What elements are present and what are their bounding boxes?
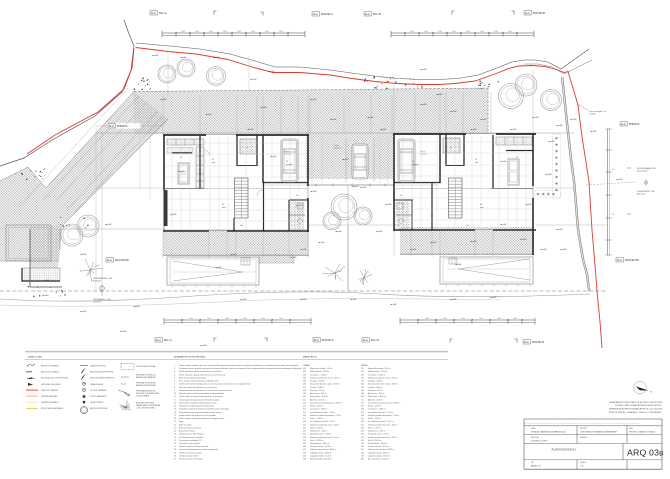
svg-text:POSICAO CARTOGRAFICA PERIODICA: POSICAO CARTOGRAFICA PERIODICA DE REGIST…: [615, 404, 662, 407]
svg-text:Instalacao sanitaria de servic: Instalacao sanitaria de servico - 3,65 m…: [368, 376, 398, 379]
svg-text:4.50: 4.50: [195, 31, 198, 33]
svg-text:Instalacao sanitaria da suite: Instalacao sanitaria da suite 3 - 5,25 m…: [310, 436, 340, 439]
svg-text:M. armario tecnico p/ contador: M. armario tecnico p/ contadores: [179, 436, 204, 439]
svg-text:CERCA URBANA - PVM: CERCA URBANA - PVM: [637, 167, 656, 170]
svg-text:ALÇ: ALÇ: [621, 122, 626, 126]
svg-text:Despensa - 3,35 m²: Despensa - 3,35 m²: [368, 389, 383, 392]
svg-text:DESENHO: DESENHO: [580, 437, 588, 439]
svg-text:022: 022: [361, 434, 364, 436]
svg-text:REFERENCIA ALTIMETRICA MARCANT: REFERENCIA ALTIMETRICA MARCANTE DE COLOC…: [609, 408, 663, 411]
svg-text:004: 004: [303, 377, 306, 379]
svg-text:4.50: 4.50: [265, 31, 268, 33]
svg-text:017: 017: [361, 418, 364, 420]
svg-text:h=0,60m: h=0,60m: [589, 114, 596, 116]
svg-text:ALÇ: ALÇ: [365, 12, 370, 16]
svg-text:030: 030: [361, 459, 364, 461]
svg-text:Patio exterior - 48,05 m²: Patio exterior - 48,05 m²: [310, 395, 329, 398]
svg-text:A=2,80/3m²: A=2,80/3m²: [93, 280, 102, 283]
svg-text:TERRENO ALTERADO: TERRENO ALTERADO: [41, 401, 59, 404]
svg-text:011: 011: [361, 399, 364, 401]
svg-text:Guarda metalica em perfis de a: Guarda metalica em perfis de aco inox es…: [179, 414, 216, 417]
svg-text:p300: p300: [303, 299, 307, 301]
svg-text:Campainha e video porteiro: Campainha e video porteiro: [179, 442, 200, 445]
svg-text:AREA DE INTERVENCAO: AREA DE INTERVENCAO: [136, 384, 157, 387]
svg-text:Caixa postal normalizada CTT: Caixa postal normalizada CTT: [179, 439, 202, 442]
svg-text:Terraço acessivel - 30,15 m²: Terraço acessivel - 30,15 m²: [310, 445, 332, 448]
svg-text:Area total do lote - 315,00 m²: Area total do lote - 315,00 m²: [368, 458, 390, 461]
svg-text:p300: p300: [123, 331, 127, 333]
svg-text:Porta corrediça em ripado de m: Porta corrediça em ripado de madeira com…: [179, 417, 225, 420]
svg-text:011: 011: [303, 399, 306, 401]
svg-text:p300: p300: [473, 241, 477, 243]
svg-text:AREA DE IMPLANTACAO: AREA DE IMPLANTACAO: [136, 376, 156, 379]
svg-text:MAPA TETOS: MAPA TETOS: [303, 355, 317, 358]
svg-text:estar: estar: [222, 206, 226, 209]
svg-text:Garagem - 33,55 m²: Garagem - 33,55 m²: [310, 380, 326, 383]
svg-text:4.50: 4.50: [479, 318, 482, 320]
svg-text:4.50: 4.50: [223, 31, 226, 33]
svg-text:Numero de policia em chapa rec: Numero de policia em chapa recortada: [179, 445, 208, 448]
svg-text:009: 009: [303, 393, 306, 395]
svg-text:010: 010: [303, 396, 306, 398]
svg-text:NASCENTE: NASCENTE: [115, 258, 129, 262]
svg-text:oo oo oo: oo oo oo: [121, 377, 130, 379]
svg-text:p300: p300: [333, 119, 337, 121]
svg-text:07: 07: [180, 157, 182, 159]
svg-text:p300: p300: [253, 79, 257, 81]
svg-text:Instalacao sanitaria da suite: Instalacao sanitaria da suite 2 - 4,25 m…: [368, 423, 398, 426]
svg-text:1 lug. a: 1 lug. a: [284, 151, 289, 153]
svg-text:PROJETO - A DATA DE LICENCA: PROJETO - A DATA DE LICENCA: [629, 431, 655, 434]
svg-text:Piscina - 22,75 m²: Piscina - 22,75 m²: [368, 405, 382, 408]
svg-text:4.50: 4.50: [480, 31, 483, 33]
svg-text:012: 012: [361, 402, 364, 404]
svg-text:4.50: 4.50: [497, 318, 500, 320]
svg-text:4.50: 4.50: [251, 31, 254, 33]
svg-text:013: 013: [303, 406, 306, 408]
svg-text:ALÇ: ALÇ: [617, 258, 622, 262]
svg-text:WWW: WWW: [26, 372, 33, 374]
svg-text:024: 024: [303, 440, 306, 442]
svg-text:p300: p300: [83, 254, 87, 256]
svg-text:A=1,05/1,80m²: A=1,05/1,80m²: [637, 170, 649, 173]
svg-text:Suite 3 - 19,35 m²: Suite 3 - 19,35 m²: [310, 439, 324, 442]
svg-text:006: 006: [303, 384, 306, 386]
svg-text:p300: p300: [353, 299, 357, 301]
svg-text:ARQ 03B: ARQ 03B: [627, 447, 664, 457]
svg-text:Instalacao sanitaria dos quart: Instalacao sanitaria dos quartos - 7,45 …: [368, 414, 399, 417]
svg-text:sala: sala: [475, 162, 478, 164]
svg-text:Luminaria de balizamento encas: Luminaria de balizamento encastrada no p…: [179, 448, 218, 451]
svg-text:p300: p300: [543, 249, 547, 251]
svg-text:019: 019: [303, 424, 306, 426]
svg-text:p300: p300: [535, 117, 539, 119]
svg-text:Pavimento de madeira de pinho: Pavimento de madeira de pinho tratado em…: [179, 411, 222, 414]
svg-text:04: 04: [296, 195, 298, 197]
svg-text:p300: p300: [573, 119, 577, 121]
svg-text:p300: p300: [313, 191, 317, 193]
svg-text:ALÇ: ALÇ: [525, 11, 530, 15]
svg-text:Varanda da suite 1 - 9,35 m²: Varanda da suite 1 - 9,35 m²: [368, 433, 390, 436]
svg-text:p300: p300: [370, 117, 374, 119]
svg-text:Logradouro tardoz - 55,10 m²: Logradouro tardoz - 55,10 m²: [310, 454, 332, 457]
svg-text:007: 007: [361, 387, 364, 389]
svg-text:A=0,75/1m²: A=0,75/1m²: [637, 193, 646, 196]
svg-text:04: 04: [400, 195, 402, 197]
svg-text:NASCENTE: NASCENTE: [625, 258, 639, 262]
svg-text:PESSOAS ACESSIVEL A: PESSOAS ACESSIVEL A: [136, 390, 156, 393]
svg-text:SUL/ A: SUL/ A: [159, 11, 167, 15]
svg-text:001: 001: [303, 368, 306, 370]
svg-text:ALÇ: ALÇ: [151, 11, 156, 15]
svg-text:IMPOSICAO DE CORTE VERTICAL: IMPOSICAO DE CORTE VERTICAL: [41, 377, 68, 380]
svg-text:020: 020: [303, 427, 306, 429]
svg-text:p300: p300: [136, 306, 140, 308]
svg-text:005: 005: [303, 381, 306, 383]
svg-text:CERCA VERDE - PVM: CERCA VERDE - PVM: [637, 190, 655, 193]
svg-text:02: 02: [475, 159, 477, 161]
svg-text:p300: p300: [433, 242, 437, 244]
svg-text:PESSOAS COM MOBILIDADE: PESSOAS COM MOBILIDADE: [136, 392, 160, 395]
svg-text:Patio exterior - 48,05 m²: Patio exterior - 48,05 m²: [368, 395, 387, 398]
svg-text:013: 013: [361, 406, 364, 408]
svg-text:CASA B: CASA B: [361, 364, 368, 367]
svg-text:Pavimento exterior e guarnicao: Pavimento exterior e guarnicao em lajeta…: [179, 367, 301, 370]
svg-text:ALÇ: ALÇ: [156, 338, 161, 342]
svg-text:4.50: 4.50: [513, 318, 516, 320]
svg-text:p300: p300: [523, 239, 527, 241]
svg-text:MORADIA - HABITACAO UNI-FAMILI: MORADIA - HABITACAO UNI-FAMILIAR, A+B: [531, 431, 566, 434]
svg-text:OUTUBRO, 22 DE 09: OUTUBRO, 22 DE 09: [531, 440, 547, 442]
svg-text:CERCA ARVELO - PIM: CERCA ARVELO - PIM: [93, 298, 111, 301]
svg-text:018: 018: [303, 421, 306, 423]
svg-text:POENTE: POENTE: [117, 124, 128, 128]
svg-text:CONDICIONADA: CONDICIONADA: [136, 395, 150, 398]
svg-text:029: 029: [303, 455, 306, 457]
svg-text:REDE DE ILUMIN. EXISTENTE: REDE DE ILUMIN. EXISTENTE: [90, 378, 115, 380]
svg-text:ESTEIO DE CHUMACO: ESTEIO DE CHUMACO: [41, 371, 60, 374]
svg-text:Caixilharia de aluminio termol: Caixilharia de aluminio termolacado a co…: [179, 383, 251, 386]
svg-text:REDE ELETRICA EXISTENTE: REDE ELETRICA EXISTENTE: [90, 371, 114, 374]
svg-text:IMPOSICAO DE ALCADO: IMPOSICAO DE ALCADO: [41, 383, 61, 386]
svg-text:PROJETO: PROJETO: [580, 428, 588, 430]
svg-text:Suite 1 - 17,85 m²: Suite 1 - 17,85 m²: [368, 417, 382, 420]
svg-text:06: 06: [222, 204, 224, 206]
svg-text:026: 026: [361, 446, 364, 448]
svg-text:TERRENO NATURAL: TERRENO NATURAL: [41, 395, 58, 398]
svg-text:p300: p300: [593, 131, 597, 133]
svg-text:p300: p300: [413, 249, 417, 251]
svg-text:Hall de entrada - 10,50 m²: Hall de entrada - 10,50 m²: [368, 370, 388, 373]
svg-text:PONTO CANDEEIRO: PONTO CANDEEIRO: [90, 395, 107, 398]
svg-text:3.1: 3.1: [612, 214, 614, 216]
svg-text:CONDOMINIO DE MORADIAS UNIFAMI: CONDOMINIO DE MORADIAS UNIFAMILIARES: [580, 431, 618, 434]
svg-text:Rede de sombra: Rede de sombra: [179, 423, 192, 426]
svg-text:Varanda aberta - 28,75 m²: Varanda aberta - 28,75 m²: [368, 442, 388, 445]
svg-text:ESTEIO MACHO ALTERADO: ESTEIO MACHO ALTERADO: [41, 407, 64, 410]
svg-text:Piscina - 22,75 m²: Piscina - 22,75 m²: [310, 405, 324, 408]
svg-text:016: 016: [303, 415, 306, 417]
svg-text:p300: p300: [273, 156, 277, 158]
svg-text:027: 027: [303, 449, 306, 451]
svg-text:garagem: garagem: [412, 163, 419, 166]
svg-text:Cozinha - 15,85 m²: Cozinha - 15,85 m²: [310, 386, 325, 389]
svg-text:Logradouro frente - 42,35 m²: Logradouro frente - 42,35 m²: [368, 451, 390, 454]
svg-text:010: 010: [361, 396, 364, 398]
svg-text:027: 027: [361, 449, 364, 451]
svg-text:014: 014: [303, 409, 306, 411]
svg-text:023: 023: [303, 437, 306, 439]
svg-text:025: 025: [303, 443, 306, 445]
svg-text:030: 030: [303, 459, 306, 461]
svg-text:006: 006: [361, 384, 364, 386]
svg-text:Inst. Sanitaria da suite 2 - 5: Inst. Sanitaria da suite 2 - 5,55 m²: [368, 420, 394, 423]
svg-text:p300: p300: [483, 119, 487, 121]
svg-text:Instalacao sanitaria de servic: Instalacao sanitaria de servico - 3,65 m…: [310, 376, 340, 379]
svg-text:4.50: 4.50: [424, 31, 427, 33]
svg-text:PESSOAS POSSIVEL DE: PESSOAS POSSIVEL DE: [136, 374, 157, 377]
svg-text:LIMITE DE TERRENO: LIMITE DE TERRENO: [41, 390, 59, 392]
svg-text:p300: p300: [173, 214, 177, 216]
svg-text:CERCA ARBÓREA - PIM: CERCA ARBÓREA - PIM: [93, 277, 112, 280]
svg-text:4.50: 4.50: [189, 318, 192, 320]
svg-text:002: 002: [303, 371, 306, 373]
svg-text:Caleira oculta em chapa zincad: Caleira oculta em chapa zincada pintada …: [179, 395, 223, 398]
svg-text:Pavimento em cubos de granito: Pavimento em cubos de granito serrado 10…: [179, 405, 214, 408]
svg-text:Deposito de entrada - 5,05 m²: Deposito de entrada - 5,05 m²: [310, 367, 333, 370]
svg-text:p300: p300: [548, 174, 552, 176]
svg-text:Inst. Sanitaria da suite 1 - 5: Inst. Sanitaria da suite 1 - 5,15 m²: [368, 411, 394, 414]
svg-text:Sala comum de estar e jantar -: Sala comum de estar e jantar - 38,50 m²: [368, 383, 399, 386]
svg-text:p300: p300: [271, 71, 275, 73]
svg-text:Porta, caixilho e perfis de al: Porta, caixilho e perfis de aluminio ano…: [179, 380, 219, 383]
svg-text:SIMBOLOGIA: SIMBOLOGIA: [28, 355, 42, 358]
svg-text:4.50: 4.50: [452, 31, 455, 33]
svg-text:07: 07: [516, 157, 518, 159]
svg-text:4.50: 4.50: [207, 318, 210, 320]
svg-text:p300: p300: [355, 186, 359, 188]
svg-text:p300: p300: [453, 111, 457, 113]
svg-text:002: 002: [361, 371, 364, 373]
svg-text:p300: p300: [423, 104, 427, 106]
svg-text:4.50: 4.50: [508, 31, 511, 33]
svg-text:POSTE ILUMINACAO: POSTE ILUMINACAO: [90, 389, 107, 392]
svg-text:Suite 2 - 17,35 m²: Suite 2 - 17,35 m²: [310, 426, 324, 429]
svg-text:004: 004: [361, 377, 364, 379]
svg-text:018: 018: [361, 421, 364, 423]
svg-text:4.50: 4.50: [243, 318, 246, 320]
svg-text:06: 06: [480, 204, 482, 206]
svg-text:Sala comum de estar e jantar -: Sala comum de estar e jantar - 38,50 m²: [310, 383, 341, 386]
svg-text:021: 021: [303, 431, 306, 433]
svg-text:p300: p300: [528, 204, 532, 206]
svg-text:+ CAL. SEGUNDO NBR. ): + CAL. SEGUNDO NBR. ): [136, 407, 156, 410]
svg-text:Torneira de servico com suport: Torneira de servico com suporte: [179, 458, 203, 461]
svg-text:4.50: 4.50: [279, 318, 282, 320]
svg-text:Logradouro frente - 42,35 m²: Logradouro frente - 42,35 m²: [310, 451, 332, 454]
svg-text:Parede rebocada e pintada a ti: Parede rebocada e pintada a tinta de are…: [179, 373, 225, 376]
svg-text:ALÇ: ALÇ: [524, 340, 529, 344]
svg-text:CONSTRUÇÃO VIZINHA: CONSTRUÇÃO VIZINHA: [136, 365, 156, 368]
svg-text:Alpendre - 12,35 m²: Alpendre - 12,35 m²: [368, 398, 383, 401]
svg-text:p300: p300: [363, 187, 367, 189]
svg-text:003: 003: [303, 374, 306, 376]
svg-text:4.50: 4.50: [181, 31, 184, 33]
svg-text:Hall de piso 1 - 5,85 m²: Hall de piso 1 - 5,85 m²: [310, 430, 328, 433]
svg-text:p300: p300: [423, 69, 427, 71]
svg-text:009: 009: [361, 393, 364, 395]
svg-text:4.50: 4.50: [410, 31, 413, 33]
svg-text:p300: p300: [551, 141, 555, 143]
svg-text:001: 001: [361, 368, 364, 370]
svg-text:029: 029: [361, 455, 364, 457]
svg-text:p300: p300: [503, 224, 507, 226]
svg-text:p300: p300: [263, 107, 267, 109]
svg-text:Instalacao sanitaria da suite: Instalacao sanitaria da suite 2 - 4,25 m…: [310, 423, 340, 426]
svg-text:p300: p300: [208, 114, 212, 116]
svg-text:022: 022: [303, 434, 306, 436]
svg-text:Circulacao 1 - 10,65 m²: Circulacao 1 - 10,65 m²: [368, 373, 386, 376]
svg-text:NORTE/ A: NORTE/ A: [322, 338, 334, 342]
svg-text:Instalacao sanitaria dos quart: Instalacao sanitaria dos quartos - 7,45 …: [310, 414, 341, 417]
svg-text:015: 015: [361, 412, 364, 414]
svg-text:Tomada estanque exterior: Tomada estanque exterior: [179, 454, 199, 457]
svg-text:Varanda da suite 1 - 9,35 m²: Varanda da suite 1 - 9,35 m²: [310, 433, 332, 436]
svg-text:019: 019: [361, 424, 364, 426]
svg-text:p300: p300: [473, 129, 477, 131]
svg-text:p300: p300: [563, 249, 567, 251]
svg-text:p300: p300: [559, 125, 563, 127]
svg-text:Circulacao 1 - 10,65 m²: Circulacao 1 - 10,65 m²: [310, 373, 328, 376]
svg-text:024: 024: [361, 440, 364, 442]
svg-text:p300: p300: [503, 161, 507, 163]
svg-text:Area total do lote - 315,00 m²: Area total do lote - 315,00 m²: [310, 458, 332, 461]
svg-text:Zona exterior de apoio a pisci: Zona exterior de apoio a piscina - 68,55…: [368, 401, 401, 404]
svg-text:p300: p300: [388, 204, 392, 206]
svg-text:016: 016: [361, 415, 364, 417]
svg-text:ESTEIO DE CHUMACO: ESTEIO DE CHUMACO: [41, 365, 60, 368]
svg-text:Tubo de queda de aguas pluviai: Tubo de queda de aguas pluviais embutido…: [179, 398, 219, 401]
svg-text:Alpendre - 12,35 m²: Alpendre - 12,35 m²: [310, 398, 325, 401]
svg-text:4.50: 4.50: [225, 318, 228, 320]
svg-text:p300: p300: [393, 304, 397, 306]
svg-text:LINHA DE AGUA: LINHA DE AGUA: [90, 383, 104, 386]
svg-text:p300: p300: [619, 179, 623, 181]
svg-text:p300: p300: [203, 345, 207, 347]
svg-text:p300: p300: [513, 129, 517, 131]
svg-text:Parede rebocada e pintada a ti: Parede rebocada e pintada a tinta de are…: [179, 370, 222, 373]
svg-text:p300: p300: [303, 249, 307, 251]
svg-text:Cobertura nao acessivel - 88,2: Cobertura nao acessivel - 88,20 m²: [310, 448, 337, 451]
svg-text:NORTE/ B: NORTE/ B: [533, 11, 545, 15]
svg-text:sala: sala: [212, 162, 215, 164]
svg-text:LEVANTAMENTO EXECUTADO DE ACOR: LEVANTAMENTO EXECUTADO DE ACORDO COM PEC…: [609, 401, 663, 404]
svg-text:020: 020: [361, 427, 364, 429]
svg-text:ALÇ: ALÇ: [109, 124, 114, 128]
svg-text:4.50: 4.50: [425, 318, 428, 320]
svg-text:ALÇ: ALÇ: [363, 338, 368, 342]
svg-text:Varanda aberta - 28,75 m²: Varanda aberta - 28,75 m²: [310, 442, 330, 445]
svg-text:Cobertura plana invertida e la: Cobertura plana invertida e laje, acab. …: [179, 364, 299, 367]
svg-text:Muro de betao aparente descofr: Muro de betao aparente descofrado: [179, 376, 206, 379]
svg-text:026: 026: [303, 446, 306, 448]
svg-text:CAIXA CORREIO: CAIXA CORREIO: [90, 401, 104, 404]
svg-text:Hall de entrada - 10,50 m²: Hall de entrada - 10,50 m²: [310, 370, 330, 373]
svg-text:p300: p300: [218, 267, 222, 269]
svg-text:4.50: 4.50: [466, 31, 469, 33]
svg-text:4.50: 4.50: [261, 318, 264, 320]
svg-text:p300: p300: [233, 254, 237, 256]
svg-text:Terraço acessivel - 30,15 m²: Terraço acessivel - 30,15 m²: [368, 445, 390, 448]
svg-text:muro de vedação - m4: muro de vedação - m4: [589, 110, 606, 113]
svg-text:POENTE: POENTE: [629, 122, 640, 126]
svg-text:1 lug. a: 1 lug. a: [420, 151, 425, 153]
svg-text:NV: NV: [650, 392, 652, 394]
svg-text:Circulacao 2 - 14,85 m²: Circulacao 2 - 14,85 m²: [310, 408, 328, 411]
svg-text:p300: p300: [493, 297, 497, 299]
svg-text:PLANTA DOS PISOS 1: PLANTA DOS PISOS 1: [552, 448, 577, 451]
svg-text:SUL/ B: SUL/ B: [373, 12, 381, 16]
svg-text:ESTE DE TRIUNFO, CASA A A B -: ESTE DE TRIUNFO, CASA A A B - VILAS LDO …: [609, 411, 663, 414]
svg-text:NORTE/ A: NORTE/ A: [321, 12, 333, 16]
svg-text:p300: p300: [321, 242, 325, 244]
svg-text:015: 015: [303, 412, 306, 414]
svg-text:Churrasqueira em tijolo refrat: Churrasqueira em tijolo refratario: [179, 433, 204, 436]
svg-text:Area tecnica - 4,15 m²: Area tecnica - 4,15 m²: [310, 392, 327, 395]
svg-text:008: 008: [361, 390, 364, 392]
svg-text:p300: p300: [183, 57, 187, 59]
svg-text:p300: p300: [250, 129, 254, 131]
svg-text:p300: p300: [379, 231, 383, 233]
svg-text:ALÇ: ALÇ: [107, 258, 112, 262]
svg-text:028: 028: [303, 452, 306, 454]
svg-text:Rega: Rega: [179, 421, 183, 423]
svg-text:1 lug. a: 1 lug. a: [334, 145, 339, 147]
svg-text:Instalacao sanitaria da suite: Instalacao sanitaria da suite 3 - 5,25 m…: [368, 436, 398, 439]
svg-text:4.50: 4.50: [237, 31, 240, 33]
svg-text:garagem: garagem: [286, 163, 293, 166]
svg-text:Deposito de entrada - 5,05 m²: Deposito de entrada - 5,05 m²: [368, 367, 391, 370]
svg-text:Inst. Sanitaria da suite 2 - 5: Inst. Sanitaria da suite 2 - 5,55 m²: [310, 420, 336, 423]
svg-text:p300: p300: [163, 99, 167, 101]
svg-text:014: 014: [361, 409, 364, 411]
svg-text:Cobertura nao acessivel - 88,2: Cobertura nao acessivel - 88,20 m²: [368, 448, 395, 451]
svg-text:Portao basculante termolacado: Portao basculante termolacado na cor cin…: [179, 389, 232, 392]
svg-text:Cozinha - 15,85 m²: Cozinha - 15,85 m²: [368, 386, 383, 389]
svg-text:021: 021: [361, 431, 364, 433]
svg-text:Banco fixo em betao: Banco fixo em betao: [179, 430, 194, 433]
svg-text:Estore de laminas orientaveis: Estore de laminas orientaveis: [179, 426, 201, 429]
svg-text:p300: p300: [299, 205, 303, 207]
svg-text:012: 012: [303, 402, 306, 404]
svg-text:p300: p300: [108, 224, 112, 226]
svg-text:005: 005: [361, 381, 364, 383]
svg-text:007: 007: [303, 387, 306, 389]
svg-text:Logradouro tardoz - 55,10 m²: Logradouro tardoz - 55,10 m²: [368, 454, 390, 457]
svg-text:4.50: 4.50: [443, 318, 446, 320]
svg-text:p300: p300: [83, 311, 87, 313]
svg-text:Pavimento em lajetas de betao: Pavimento em lajetas de betao branco 50x…: [179, 408, 229, 411]
svg-text:025: 025: [361, 443, 364, 445]
svg-text:Suite 3 - 19,35 m²: Suite 3 - 19,35 m²: [368, 439, 382, 442]
svg-text:4.50: 4.50: [438, 31, 441, 33]
svg-text:p300: p300: [45, 295, 49, 297]
svg-text:SUL/ A: SUL/ A: [164, 338, 172, 342]
svg-text:Hall de piso 1 - 5,85 m²: Hall de piso 1 - 5,85 m²: [368, 430, 386, 433]
svg-text:Despensa - 3,35 m²: Despensa - 3,35 m²: [310, 389, 325, 392]
svg-text:05: 05: [412, 161, 414, 163]
svg-text:p300: p300: [439, 94, 443, 96]
